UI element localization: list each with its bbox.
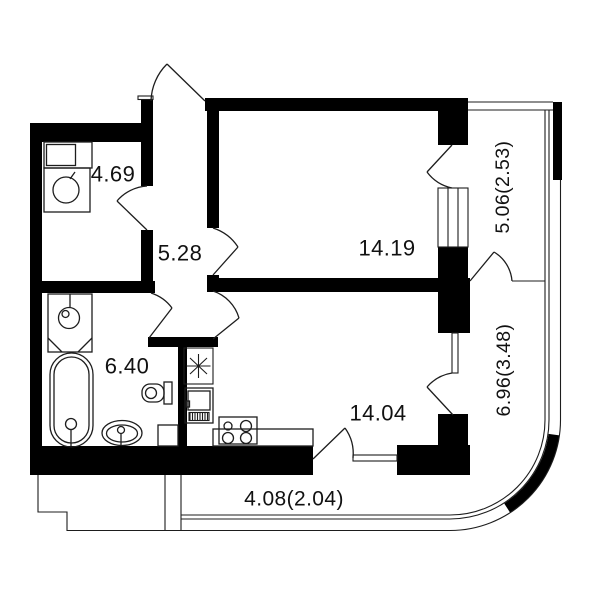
wall-balcony-pier <box>553 102 562 180</box>
wall-hall-right <box>207 98 219 228</box>
bedroom-window <box>438 188 468 247</box>
room-label-storage: 4.69 <box>91 162 135 187</box>
room-label-balcony-lower: 6.96(3.48) <box>493 324 515 417</box>
refrigerator-icon <box>185 388 213 423</box>
balcony-partition-door-leaf <box>470 252 494 281</box>
wall-top-main <box>205 98 440 111</box>
wall-top-storage <box>30 123 141 142</box>
wall-bottom-right-corner <box>397 445 470 475</box>
living-room-door-lower <box>213 291 239 339</box>
bedroom-balcony-door <box>427 145 452 188</box>
floor-plan-canvas: 4.69 5.28 14.19 6.40 14.04 5.06(2.53) 6.… <box>0 0 600 600</box>
wall-bedroom-corner-block <box>438 98 468 145</box>
room-label-balcony-upper: 5.06(2.53) <box>492 141 514 234</box>
room-label-bedroom: 14.19 <box>358 236 415 261</box>
living-balcony-window <box>452 333 458 373</box>
cabinet-icon <box>44 142 92 168</box>
room-label-hallway: 5.28 <box>158 241 202 266</box>
room-label-bathroom: 6.40 <box>105 354 149 379</box>
wall-storage-bathroom <box>42 281 155 293</box>
washbasin-icon <box>102 421 142 447</box>
wall-left <box>30 123 42 475</box>
entrance-door <box>151 64 205 101</box>
wall-living-right-lower-block <box>438 414 468 445</box>
bottom-balcony-window <box>353 455 397 461</box>
bathtub-icon <box>50 353 93 447</box>
washing-machine-icon <box>44 168 90 212</box>
storage-door <box>117 186 147 230</box>
wall-living-right-block <box>438 278 470 333</box>
room-label-balcony-bottom: 4.08(2.04) <box>244 488 344 511</box>
shower-cabin-icon <box>48 294 92 352</box>
living-room-door-upper <box>213 228 238 275</box>
room-label-living: 14.04 <box>349 401 406 426</box>
laundry-unit-icon <box>158 425 178 446</box>
bottom-balcony-door <box>313 428 353 459</box>
stove-icon <box>219 417 257 444</box>
toilet-icon <box>142 382 172 404</box>
wall-vestibule-bottom <box>148 337 218 347</box>
wall-bottom <box>30 446 313 475</box>
wall-bedroom-living <box>207 278 440 292</box>
vent-shaft-star-icon <box>184 348 213 384</box>
floor-plan-page: { "page": { "title": "Apartment floor pl… <box>0 0 600 600</box>
bathroom-door <box>149 293 172 338</box>
living-balcony-door <box>427 373 453 415</box>
balcony-partition-door-arc <box>494 252 512 281</box>
wall-storage-hall-upper <box>141 99 153 186</box>
